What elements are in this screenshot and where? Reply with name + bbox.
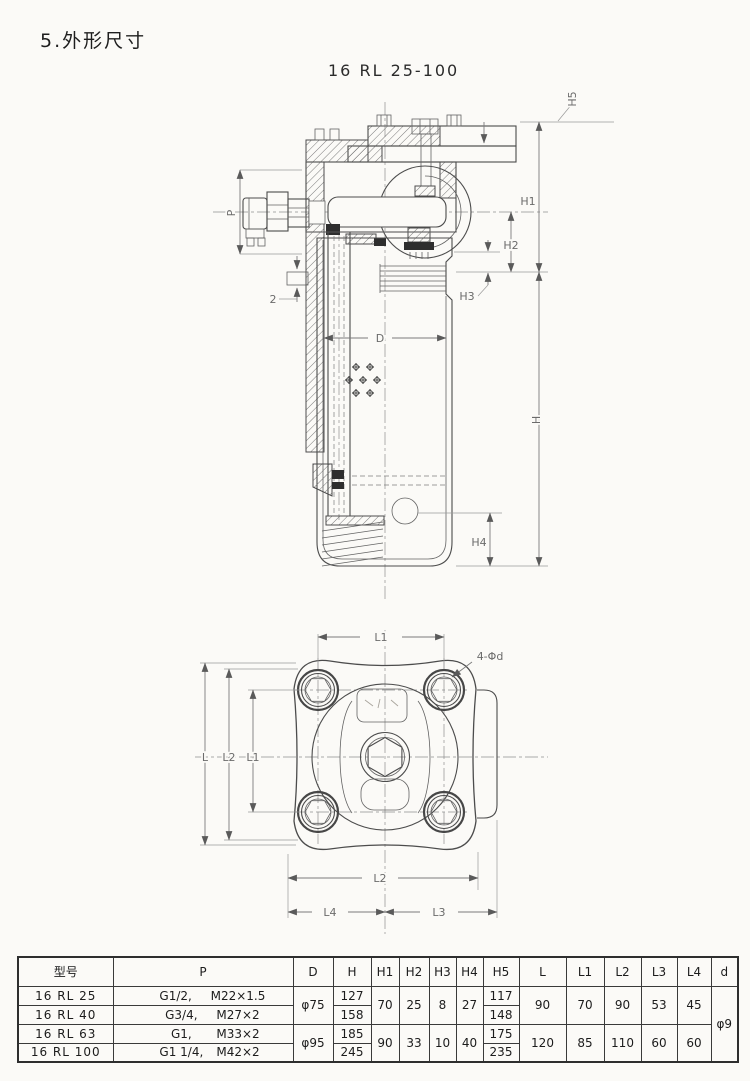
header-h5: H5 [483, 957, 519, 986]
dim-label-L3: L3 [432, 906, 445, 919]
nameplate-box [357, 689, 407, 722]
dim-label-P: P [225, 209, 238, 216]
dim-label-H: H [530, 416, 543, 424]
dim-label-H5: H5 [566, 91, 579, 106]
dim-label-L1-top: L1 [374, 631, 387, 644]
cover-plate [348, 115, 516, 162]
port-cell: G1/2,M22×1.5 [113, 986, 293, 1005]
main-view-dimensions: P 2 D H5 H1 H2 H3 [225, 91, 614, 566]
d-cell: φ95 [293, 1024, 333, 1062]
l-cell: 120 [519, 1024, 566, 1062]
header-l: L [519, 957, 566, 986]
port-channel [328, 197, 446, 227]
dim-label-L: L [202, 751, 209, 764]
corner-bolts [298, 670, 464, 832]
h3-cell: 10 [429, 1024, 456, 1062]
dim-label-H2: H2 [503, 239, 518, 252]
l3-cell: 60 [641, 1024, 677, 1062]
header-l1: L1 [566, 957, 604, 986]
l4-cell: 60 [677, 1024, 711, 1062]
l1-cell: 70 [566, 986, 604, 1024]
head-flange [306, 129, 368, 162]
drain-port [392, 498, 418, 524]
d-hole-cell: φ9 [711, 986, 738, 1062]
filter-bowl [313, 232, 452, 566]
header-l2: L2 [604, 957, 641, 986]
dim-label-L2-bottom: L2 [373, 872, 386, 885]
header-h4: H4 [456, 957, 483, 986]
h1-cell: 90 [371, 1024, 399, 1062]
dim-label-L4: L4 [323, 906, 336, 919]
d-cell: φ75 [293, 986, 333, 1024]
l2-cell: 110 [604, 1024, 641, 1062]
h5-cell: 175 [483, 1024, 519, 1043]
header-model: 型号 [18, 957, 113, 986]
h-cell: 127 [333, 986, 371, 1005]
side-tab [477, 690, 497, 818]
dim-label-H4: H4 [471, 536, 486, 549]
dim-label-L1-left: L1 [246, 751, 259, 764]
h5-cell: 117 [483, 986, 519, 1005]
l4-cell: 45 [677, 986, 711, 1024]
header-h2: H2 [399, 957, 429, 986]
header-h: H [333, 957, 371, 986]
header-p: P [113, 957, 293, 986]
dim-label-L2-left: L2 [222, 751, 235, 764]
l1-cell: 85 [566, 1024, 604, 1062]
scanned-drawing-page: { "page": { "title": "5.外形尺寸", "subtitle… [0, 0, 750, 1081]
h5-cell: 148 [483, 1005, 519, 1024]
dimension-drawing: P 2 D H5 H1 H2 H3 [0, 0, 750, 945]
dim-label-H1: H1 [520, 195, 535, 208]
table-row: 16 RL 25 G1/2,M22×1.5 φ75 127 70 25 8 27… [18, 986, 738, 1005]
header-h3: H3 [429, 957, 456, 986]
h4-cell: 27 [456, 986, 483, 1024]
h-cell: 158 [333, 1005, 371, 1024]
table-header-row: 型号 P D H H1 H2 H3 H4 H5 L L1 L2 L3 L4 d [18, 957, 738, 986]
dim-label-2: 2 [270, 293, 277, 306]
bottom-flange-view: L1 4-Φd L L2 L1 L2 L4 L3 [195, 630, 548, 934]
hex-nut [267, 192, 288, 231]
l3-cell: 53 [641, 986, 677, 1024]
port-cell: G1,M33×2 [113, 1024, 293, 1043]
dimension-spec-table: 型号 P D H H1 H2 H3 H4 H5 L L1 L2 L3 L4 d … [17, 956, 739, 1063]
h1-cell: 70 [371, 986, 399, 1024]
table-row: 16 RL 63 G1,M33×2 φ95 185 90 33 10 40 17… [18, 1024, 738, 1043]
header-d: D [293, 957, 333, 986]
h-cell: 185 [333, 1024, 371, 1043]
h2-cell: 33 [399, 1024, 429, 1062]
model-cell: 16 RL 25 [18, 986, 113, 1005]
bolt-hole-note: 4-Φd [477, 650, 504, 663]
model-cell: 16 RL 100 [18, 1043, 113, 1062]
header-l3: L3 [641, 957, 677, 986]
dim-label-D: D [376, 332, 384, 345]
h4-cell: 40 [456, 1024, 483, 1062]
h5-cell: 235 [483, 1043, 519, 1062]
h3-cell: 8 [429, 986, 456, 1024]
dim-label-H3: H3 [459, 290, 474, 303]
model-cell: 16 RL 40 [18, 1005, 113, 1024]
header-l4: L4 [677, 957, 711, 986]
model-cell: 16 RL 63 [18, 1024, 113, 1043]
h2-cell: 25 [399, 986, 429, 1024]
l-cell: 90 [519, 986, 566, 1024]
bowl-threads [380, 264, 446, 293]
h-cell: 245 [333, 1043, 371, 1062]
header-d-hole: d [711, 957, 738, 986]
l2-cell: 90 [604, 986, 641, 1024]
port-cell: G3/4,M27×2 [113, 1005, 293, 1024]
port-cell: G1 1/4,M42×2 [113, 1043, 293, 1062]
header-h1: H1 [371, 957, 399, 986]
main-section-view: P 2 D H5 H1 H2 H3 [213, 91, 614, 602]
